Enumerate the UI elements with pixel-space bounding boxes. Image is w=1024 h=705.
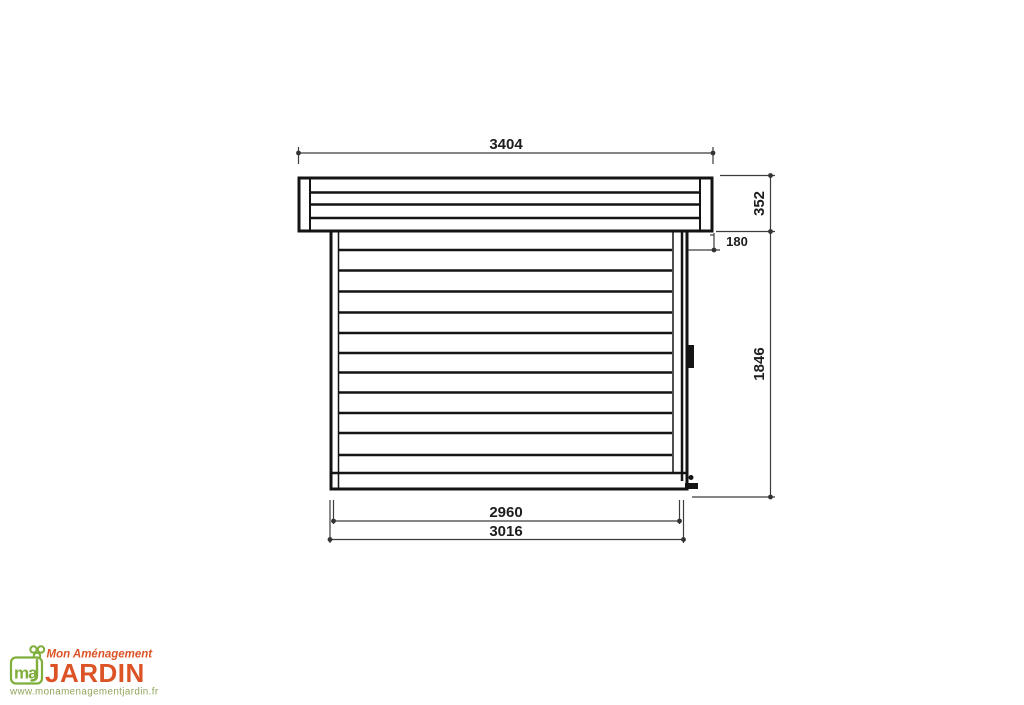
brand-name-main: JARDIN — [45, 658, 145, 688]
dim-marker — [712, 248, 717, 253]
dim-marker — [768, 173, 773, 178]
dim-roof-thickness-label: 352 — [751, 191, 768, 216]
dim-marker — [768, 495, 773, 500]
dim-marker — [711, 151, 716, 156]
latch-pin — [689, 475, 694, 480]
dim-wall-width-label: 2960 — [489, 504, 522, 521]
dim-marker — [328, 537, 333, 542]
clover-circle — [38, 646, 44, 652]
technical-drawing: 3404 352 1846 180 2960 3016 — [0, 0, 1024, 705]
dim-marker — [677, 519, 682, 524]
dim-roof-width-label: 3404 — [489, 136, 523, 153]
dim-wall-height-label: 1846 — [751, 347, 768, 380]
dim-marker — [681, 537, 686, 542]
dim-marker — [296, 151, 301, 156]
dim-top-trim: 180 — [688, 233, 748, 252]
wall — [331, 231, 698, 489]
clover-circle — [30, 646, 36, 652]
dim-roof-width: 3404 — [296, 136, 715, 164]
door-handle — [687, 345, 694, 368]
dim-marker — [768, 229, 773, 234]
roof — [299, 178, 712, 231]
brand-logo: ma Mon Aménagement JARDIN www.monamenage… — [9, 646, 159, 697]
dim-bottom-widths: 2960 3016 — [328, 500, 686, 543]
dim-marker — [331, 519, 336, 524]
brand-url: www.monamenagementjardin.fr — [9, 687, 159, 698]
dim-top-trim-label: 180 — [726, 234, 748, 249]
page-canvas: 3404 352 1846 180 2960 3016 — [0, 0, 1024, 705]
latch-foot — [685, 483, 698, 489]
dim-base-width-label: 3016 — [489, 523, 522, 540]
